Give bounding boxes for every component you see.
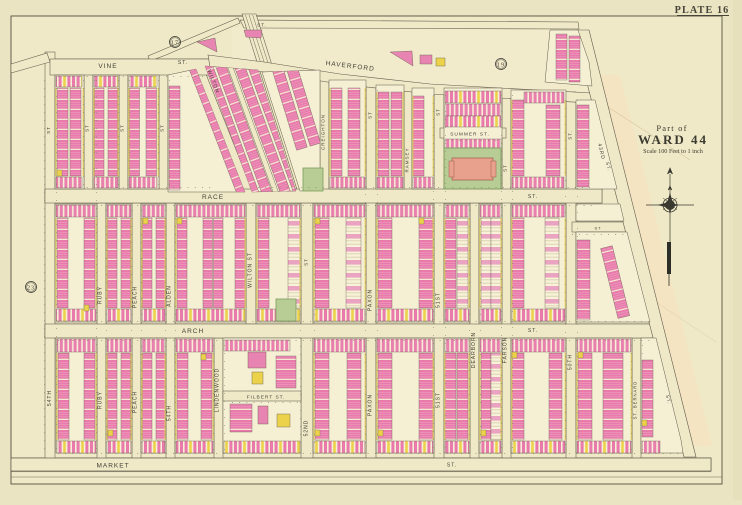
svg-text:WILTON ST: WILTON ST bbox=[248, 252, 254, 288]
svg-text:ST.: ST. bbox=[528, 328, 538, 334]
svg-text:ST.: ST. bbox=[528, 194, 538, 200]
svg-text:PEACH: PEACH bbox=[133, 391, 139, 413]
svg-text:ST: ST bbox=[160, 124, 165, 132]
svg-text:FARSON: FARSON bbox=[503, 337, 509, 364]
svg-text:ARCH: ARCH bbox=[182, 328, 204, 335]
svg-text:ST: ST bbox=[304, 258, 309, 266]
svg-text:CREIGHTON: CREIGHTON bbox=[321, 114, 326, 150]
svg-text:ST: ST bbox=[436, 108, 441, 116]
svg-text:51ST: 51ST bbox=[436, 392, 442, 408]
svg-text:RACE: RACE bbox=[202, 194, 224, 201]
svg-text:ST. BERNARD: ST. BERNARD bbox=[633, 381, 638, 420]
svg-text:ST.: ST. bbox=[447, 463, 457, 469]
svg-text:ALDEN: ALDEN bbox=[167, 285, 173, 307]
svg-text:DEARBORN: DEARBORN bbox=[471, 332, 477, 368]
svg-text:ST: ST bbox=[503, 164, 508, 172]
svg-text:RUBY: RUBY bbox=[98, 391, 104, 409]
svg-text:Scale 100 Feet to 1 inch: Scale 100 Feet to 1 inch bbox=[643, 148, 704, 155]
svg-text:WARD 44: WARD 44 bbox=[638, 132, 708, 147]
svg-text:ST: ST bbox=[368, 111, 373, 119]
svg-text:VINE: VINE bbox=[98, 63, 117, 70]
svg-text:SUMMER ST.: SUMMER ST. bbox=[450, 132, 490, 138]
svg-text:50TH: 50TH bbox=[568, 354, 574, 370]
svg-text:PAXON: PAXON bbox=[368, 394, 374, 416]
svg-text:17: 17 bbox=[171, 41, 179, 47]
svg-text:ST.: ST. bbox=[257, 23, 267, 28]
svg-text:54TH: 54TH bbox=[167, 405, 173, 421]
svg-text:54TH: 54TH bbox=[47, 390, 53, 406]
svg-text:ST: ST bbox=[46, 126, 51, 134]
svg-text:LINDENWOOD: LINDENWOOD bbox=[215, 368, 221, 412]
svg-text:RAMSEY: RAMSEY bbox=[405, 147, 410, 172]
svg-text:51ST: 51ST bbox=[436, 292, 442, 308]
svg-text:52ND: 52ND bbox=[304, 420, 310, 437]
svg-text:23: 23 bbox=[27, 286, 35, 292]
svg-text:PEACH: PEACH bbox=[133, 286, 139, 308]
svg-text:PAXON: PAXON bbox=[368, 289, 374, 311]
svg-text:RUBY: RUBY bbox=[98, 286, 104, 304]
svg-text:ST: ST bbox=[120, 124, 125, 132]
svg-text:ST: ST bbox=[594, 226, 601, 231]
svg-text:ST.: ST. bbox=[568, 130, 573, 140]
svg-text:PLATE 16: PLATE 16 bbox=[675, 5, 730, 16]
svg-text:FILBERT ST.: FILBERT ST. bbox=[247, 395, 286, 401]
svg-text:ST: ST bbox=[85, 124, 90, 132]
svg-text:ST.: ST. bbox=[178, 60, 188, 66]
svg-text:19: 19 bbox=[497, 63, 505, 69]
svg-text:MARKET: MARKET bbox=[96, 463, 129, 470]
